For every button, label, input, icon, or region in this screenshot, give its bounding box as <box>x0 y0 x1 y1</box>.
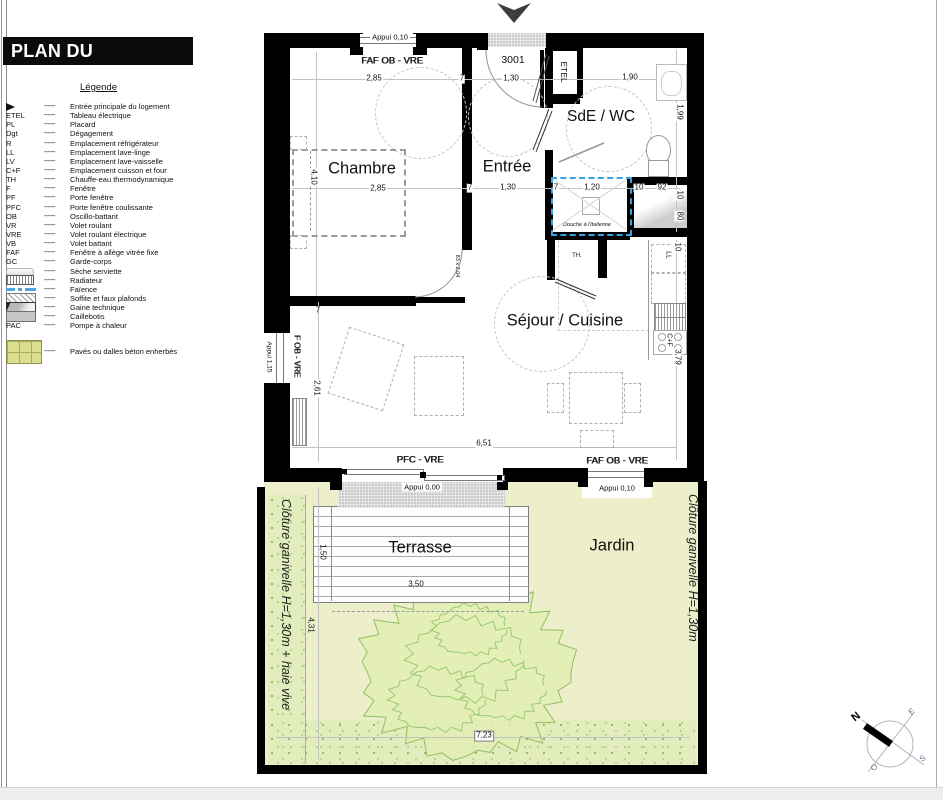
legend-item: LV------Emplacement lave-vaisselle <box>6 157 258 166</box>
compass-circle <box>867 721 913 767</box>
kitchen-counter-edge <box>648 240 649 360</box>
nightstand <box>290 235 307 249</box>
legend-label: Garde-corps <box>70 257 112 266</box>
slider-handle <box>497 475 502 480</box>
legend-label: Soffite et faux plafonds <box>70 294 146 303</box>
legend-dash: ------ <box>44 204 70 211</box>
faience-icon <box>6 288 36 291</box>
legend-label: Volet battant <box>70 239 112 248</box>
dim: 1,30 <box>499 184 517 193</box>
wall-pier <box>264 383 290 391</box>
room-label-sejour: Séjour / Cuisine <box>507 312 623 331</box>
dim: 10 <box>634 184 645 193</box>
wall-pier <box>477 33 488 50</box>
legend-code: F <box>6 184 44 193</box>
window-type-label: F OB - VRE <box>293 335 302 377</box>
window-line <box>276 333 277 383</box>
window-line <box>588 477 644 478</box>
washbasin-bowl <box>661 71 682 96</box>
legend-dash: ------ <box>44 231 70 238</box>
slider-handle <box>342 469 347 474</box>
wall-bottom <box>506 468 582 482</box>
legend-dash: ------ <box>44 194 70 201</box>
page-border-right <box>936 0 937 788</box>
legend-dash: ------ <box>44 249 70 256</box>
legend-item: Dgt------Dégagement <box>6 129 258 138</box>
legend-label: Emplacement lave-linge <box>70 148 150 157</box>
label-lave-linge: LL <box>665 251 672 259</box>
legend-code: VB <box>6 239 44 248</box>
legend-item: TH------Chauffe-eau thermodynamique <box>6 175 258 184</box>
dim: 92 <box>657 184 668 193</box>
legend-dash: ------ <box>44 176 70 183</box>
cloture-left-label: Clôture ganivelle H=1,30m + haie vive <box>279 499 293 710</box>
bed-headboard-line <box>310 151 312 231</box>
legend-item: ------Radiateur <box>6 276 258 285</box>
dim: 3,79 <box>673 348 682 366</box>
legend-label: Emplacement cuisson et four <box>70 166 167 175</box>
wall-gaine-bottom <box>627 228 689 237</box>
legend-code: Dgt <box>6 129 44 138</box>
terrasse-dashed-boundary <box>332 611 524 612</box>
floor-plan-page: PLAN DU LOGEMENT Légende ------Entrée pr… <box>0 0 943 800</box>
wall-th-left <box>547 240 555 280</box>
entrance-arrow-icon <box>6 103 15 111</box>
legend-dash: ------ <box>44 167 70 174</box>
window-type-label: PFC - VRE <box>397 455 444 466</box>
dim: 2,61 <box>312 379 321 397</box>
appui-label: Appui 0,10 <box>370 33 410 42</box>
fridge <box>651 273 686 304</box>
sofa <box>414 356 464 416</box>
dining-table <box>569 372 623 424</box>
wall-bottom <box>264 468 336 482</box>
paves-icon <box>6 340 42 364</box>
legend-symbol <box>6 340 44 364</box>
legend-dash: ------ <box>44 322 70 329</box>
radiateur-icon <box>6 275 34 285</box>
legend-dash: ------ <box>44 158 70 165</box>
dim: 7 <box>553 184 559 193</box>
window-line <box>360 43 416 44</box>
legend-dash: ------ <box>44 277 70 284</box>
legend-item: OB------Oscillo-battant <box>6 212 258 221</box>
window-line <box>283 333 284 383</box>
sliding-panel <box>424 475 505 481</box>
dim: 1,30 <box>502 75 520 84</box>
legend-item: F------Fenêtre <box>6 184 258 193</box>
legend-item: VR------Volet roulant <box>6 221 258 230</box>
window-type-label: FAF OB - VRE <box>586 456 648 467</box>
page-title: PLAN DU LOGEMENT <box>3 37 193 65</box>
legend-dash: ------ <box>44 140 70 147</box>
legend-dash: ------ <box>44 103 70 110</box>
deck-edge-right <box>509 506 510 601</box>
wall <box>546 33 687 48</box>
legend-code: C+F <box>6 166 44 175</box>
legend-dash: ------ <box>44 121 70 128</box>
turning-circle <box>468 77 548 157</box>
legend-dash: ------ <box>44 130 70 137</box>
dim: 2,85 <box>369 185 387 194</box>
dim: 10 <box>673 242 682 253</box>
wall-th-right <box>598 240 607 278</box>
legend-dash: ------ <box>44 258 70 265</box>
legend-code: ETEL <box>6 111 44 120</box>
page-bottom-strip <box>0 787 943 800</box>
legend-label: Caillebotis <box>70 312 105 321</box>
legend-code: LL <box>6 148 44 157</box>
legend-rows: ------Entrée principale du logementETEL-… <box>6 102 258 364</box>
legend-item: VRE------Volet roulant électrique <box>6 230 258 239</box>
dim: 1,90 <box>621 74 639 83</box>
legend-code: LV <box>6 157 44 166</box>
cloture-right-label: Clôture ganivelle H=1,30m <box>686 494 700 642</box>
legend-label: Fenêtre à allège vitrée fixe <box>70 248 158 257</box>
legend-item: LL------Emplacement lave-linge <box>6 148 258 157</box>
room-label-chambre: Chambre <box>328 160 396 179</box>
legend-label: Fenêtre <box>70 184 96 193</box>
compass-west-label: O <box>869 762 879 773</box>
shower-drain <box>582 197 600 215</box>
legend-dash: ------ <box>44 295 70 302</box>
dim: 80 <box>675 211 684 222</box>
legend-code: PFC <box>6 203 44 212</box>
compass-north-label: N <box>849 710 863 724</box>
legend-heading: Légende <box>80 82 258 93</box>
dim: 7 <box>459 75 465 84</box>
turning-circle <box>375 67 467 159</box>
legend-label: Volet roulant électrique <box>70 230 146 239</box>
label-etel: ETEL <box>559 61 569 82</box>
legend-label: Oscillo-battant <box>70 212 118 221</box>
legend-dash: ------ <box>44 213 70 220</box>
legend-dash: ------ <box>44 304 70 311</box>
appui-label: Appui 1,15 <box>266 341 273 372</box>
wall-left <box>264 33 290 325</box>
legend-dash: ------ <box>44 348 70 355</box>
legend-item: VB------Volet battant <box>6 239 258 248</box>
chair <box>547 383 564 413</box>
chair <box>580 430 614 448</box>
wall-pier <box>330 468 342 490</box>
wall-pier <box>578 468 588 487</box>
legend-label: Chauffe-eau thermodynamique <box>70 175 173 184</box>
legend-code: OB <box>6 212 44 221</box>
label-th: TH. <box>572 253 582 259</box>
entrance-arrow-icon <box>497 3 531 23</box>
legend-dash: ------ <box>44 149 70 156</box>
legend-label: Placard <box>70 120 95 129</box>
legend-item: PAC------Pompe à chaleur <box>6 321 258 330</box>
room-label-terrasse: Terrasse <box>388 539 451 558</box>
appui-label: Appui 0,10 <box>597 484 637 493</box>
compass-axis <box>862 720 924 765</box>
legend-dash: ------ <box>44 313 70 320</box>
window-type-label: FAF OB - VRE <box>361 56 423 67</box>
dim: 2,85 <box>365 75 383 84</box>
dim: 10 <box>675 190 684 201</box>
dim: 4,31 <box>306 616 315 634</box>
dim: 1,99 <box>675 103 684 121</box>
hedge-bottom <box>268 720 696 764</box>
legend-label: Entrée principale du logement <box>70 102 170 111</box>
legend-label: Emplacement lave-vaisselle <box>70 157 163 166</box>
legend-item: ETEL------Tableau électrique <box>6 111 258 120</box>
legend-label: Porte fenêtre coulissante <box>70 203 153 212</box>
room-label-sde: SdE / WC <box>567 108 635 126</box>
sliding-panel <box>344 469 424 475</box>
legend-dash: ------ <box>44 268 70 275</box>
garden-wall-bottom <box>257 765 707 774</box>
wall-bottom <box>650 468 704 482</box>
legend-dash: ------ <box>44 222 70 229</box>
legend-dash: ------ <box>44 112 70 119</box>
garden-wall-left <box>257 487 265 773</box>
dim: 1,20 <box>583 184 601 193</box>
legend-item: ------Caillebotis <box>6 312 258 321</box>
legend-item: ------Entrée principale du logement <box>6 102 258 111</box>
legend-item: R------Emplacement réfrigérateur <box>6 139 258 148</box>
legend-label: Porte fenêtre <box>70 193 113 202</box>
legend-item: ------Pavés ou dalles béton enherbés <box>6 340 258 364</box>
dim: 4,10 <box>309 168 318 186</box>
legend-label: Sèche serviette <box>70 267 122 276</box>
legend-code: VRE <box>6 230 44 239</box>
legend-symbol <box>6 102 44 111</box>
dim: 1,50 <box>318 543 327 561</box>
legend-label: Faïence <box>70 285 97 294</box>
legend-item: GC------Garde-corps <box>6 257 258 266</box>
legend-dash: ------ <box>44 286 70 293</box>
chambre-door-leaf <box>415 297 465 303</box>
dim: 7 <box>467 184 473 193</box>
appliance <box>654 303 686 318</box>
window-line <box>588 471 644 472</box>
dim: 3,50 <box>407 581 425 590</box>
entrance-threshold <box>487 33 546 47</box>
chair <box>624 383 641 413</box>
radiator <box>292 398 307 446</box>
legend-item: FAF------Fenêtre à allège vitrée fixe <box>6 248 258 257</box>
dim: 6,51 <box>475 440 493 449</box>
wall-chambre-south <box>290 296 416 306</box>
legend-label: Dégagement <box>70 129 113 138</box>
nightstand <box>290 136 307 150</box>
armchair <box>328 327 405 411</box>
legend-label: Tableau électrique <box>70 111 131 120</box>
dim: 7,23 <box>474 731 494 742</box>
legend-item: PFC------Porte fenêtre coulissante <box>6 203 258 212</box>
label-cuisson: C+F <box>666 333 673 346</box>
dim: 7 <box>315 307 321 316</box>
label-douche: Douche à l'italienne <box>563 222 611 228</box>
legend-label: Pavés ou dalles béton enherbés <box>70 347 177 356</box>
legend-label: Radiateur <box>70 276 103 285</box>
deck-edge-left <box>331 506 332 601</box>
legend-item: PF------Porte fenêtre <box>6 193 258 202</box>
compass-east-label: E <box>907 706 917 716</box>
compass-needle <box>865 726 891 744</box>
dim-line <box>292 79 676 80</box>
legend-code: R <box>6 139 44 148</box>
toilet-tank <box>648 160 669 177</box>
dim-line <box>318 487 319 759</box>
legend: Légende ------Entrée principale du logem… <box>6 82 258 364</box>
legend-label: Emplacement réfrigérateur <box>70 139 159 148</box>
legend-dash: ------ <box>44 240 70 247</box>
legend-code: PAC <box>6 321 44 330</box>
legend-label: Pompe à chaleur <box>70 321 127 330</box>
wall-right <box>687 33 704 475</box>
wall-pier <box>264 325 290 333</box>
legend-item: C+F------Emplacement cuisson et four <box>6 166 258 175</box>
legend-code: TH <box>6 175 44 184</box>
legend-code: GC <box>6 257 44 266</box>
turning-circle <box>566 86 652 172</box>
legend-label: Volet roulant <box>70 221 112 230</box>
legend-code: PL <box>6 120 44 129</box>
legend-code: VR <box>6 221 44 230</box>
unit-number: 3001 <box>500 55 525 67</box>
legend-dash: ------ <box>44 185 70 192</box>
wall-left-lower <box>264 391 290 468</box>
page-border-left-outer <box>1 0 2 788</box>
legend-item: PL------Placard <box>6 120 258 129</box>
legend-code: PF <box>6 193 44 202</box>
legend-code: FAF <box>6 248 44 257</box>
legend-symbol <box>6 275 44 285</box>
slider-handle <box>420 472 426 478</box>
room-label-jardin: Jardin <box>590 537 635 556</box>
compass-south-label: S <box>918 753 928 763</box>
appliance <box>654 317 686 331</box>
room-label-entree: Entrée <box>483 158 532 177</box>
appui-label: Appui 0,00 <box>402 483 442 492</box>
legend-label: Gaine technique <box>70 303 125 312</box>
door-size-label: 83 x 2,04 <box>454 254 460 279</box>
